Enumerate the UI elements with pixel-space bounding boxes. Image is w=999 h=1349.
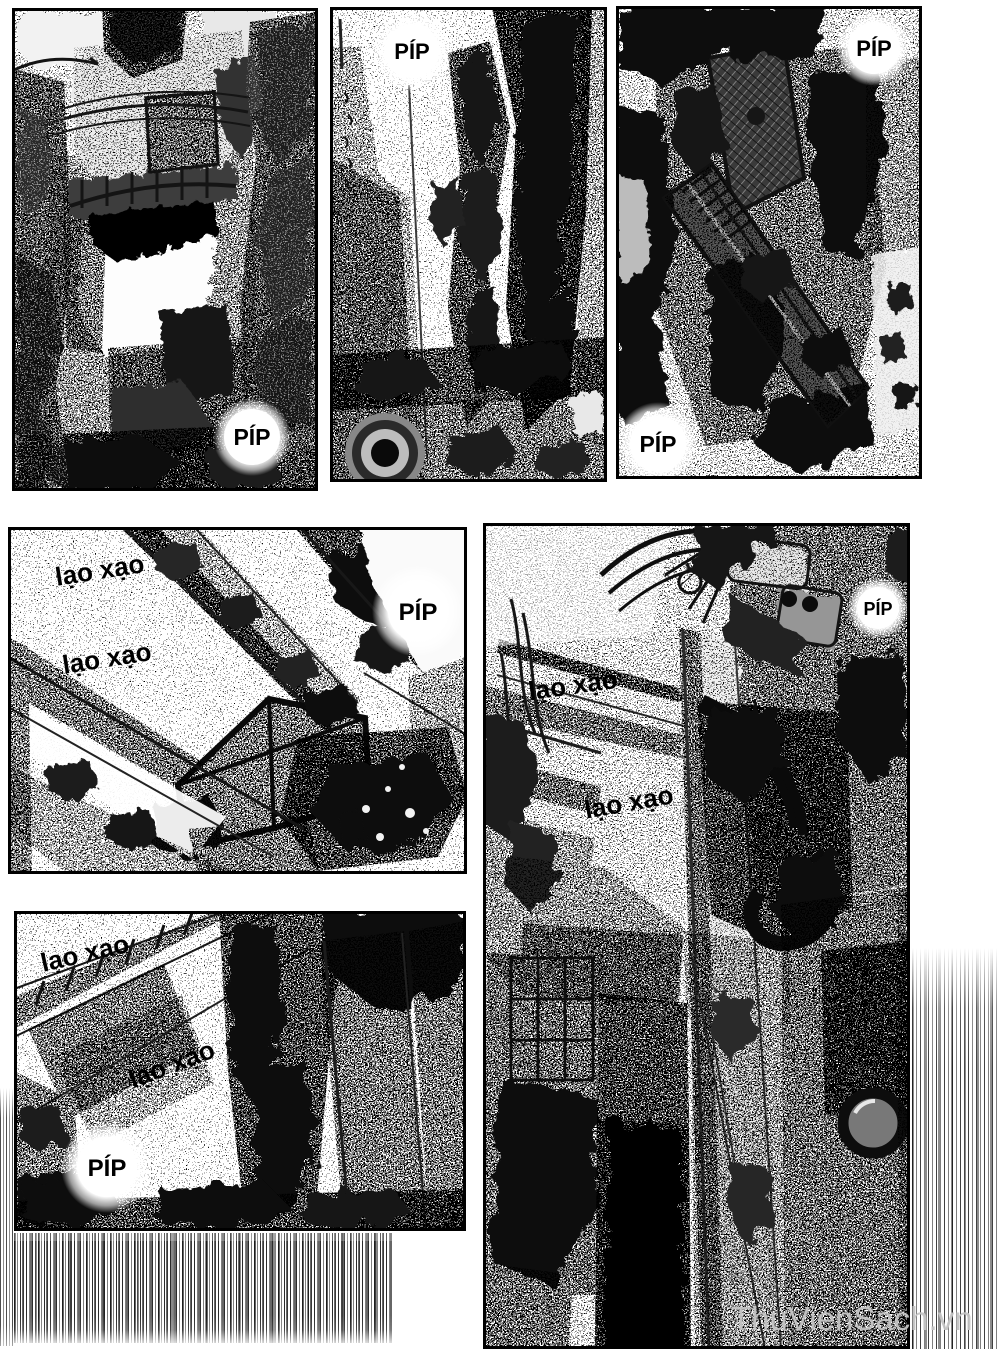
svg-text:PÍP: PÍP bbox=[863, 598, 892, 619]
svg-text:PÍP: PÍP bbox=[394, 39, 429, 64]
svg-text:PÍP: PÍP bbox=[856, 36, 891, 61]
svg-text:PÍP: PÍP bbox=[399, 598, 438, 626]
svg-text:PÍP: PÍP bbox=[233, 423, 270, 450]
svg-text:PÍP: PÍP bbox=[88, 1154, 127, 1182]
svg-text:PÍP: PÍP bbox=[639, 430, 676, 457]
